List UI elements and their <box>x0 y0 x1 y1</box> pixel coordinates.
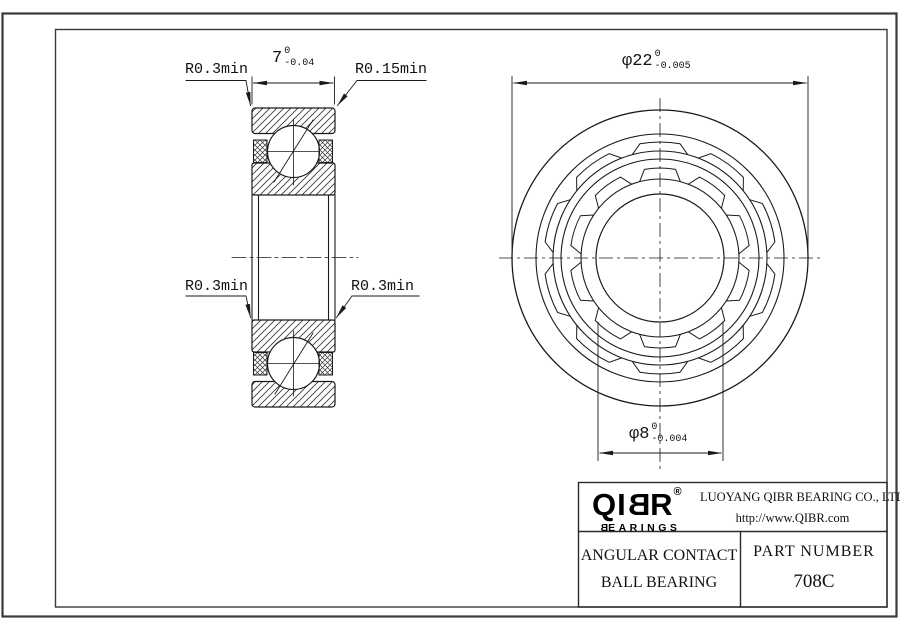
bore-tol-lower: -0.004 <box>651 434 687 446</box>
drawing-canvas <box>0 0 900 636</box>
radius-label-top-left: R0.3min <box>185 61 248 78</box>
sheet-borders <box>3 14 897 617</box>
product-name-line1: ANGULAR CONTACT <box>578 547 740 565</box>
company-website: http://www.QIBR.com <box>700 511 885 526</box>
company-name: LUOYANG QIBR BEARING CO., LTD <box>700 490 885 505</box>
product-name-line2: BALL BEARING <box>578 574 740 592</box>
bore-diameter-value: φ8 <box>629 425 649 444</box>
width-dimension-text: 70-0.04 <box>272 47 314 70</box>
logo-post: R <box>650 487 673 522</box>
width-tol-lower: -0.04 <box>284 58 314 70</box>
drawing-sheet: R0.3min R0.15min R0.3min R0.3min 70-0.04… <box>0 0 900 636</box>
radius-label-mid-left: R0.3min <box>185 278 248 295</box>
bore-tol-upper: 0 <box>651 422 687 434</box>
cage-section-bottom-left <box>254 353 268 376</box>
bearing-cross-section-view <box>186 77 426 407</box>
width-tol-upper: 0 <box>284 46 314 58</box>
logo-pre: QI <box>592 487 627 522</box>
width-value: 7 <box>272 49 282 68</box>
part-number-value: 708C <box>741 571 887 593</box>
radius-label-top-right: R0.15min <box>355 61 427 78</box>
registered-mark: ® <box>674 486 683 498</box>
cage-section-bottom-right <box>319 353 333 376</box>
cage-section-top-left <box>254 140 268 163</box>
logo-wordmark: QIBR® <box>592 489 683 520</box>
part-number-label: PART NUMBER <box>741 543 887 561</box>
radius-label-mid-right: R0.3min <box>351 278 414 295</box>
cage-section-top-right <box>319 140 333 163</box>
company-logo: QIBR® BEARINGS <box>592 489 683 534</box>
outer-diameter-value: φ22 <box>622 52 653 71</box>
logo-sub-rest: EARINGS <box>608 522 680 534</box>
logo-subtext: BEARINGS <box>597 522 683 534</box>
outer-tol-upper: 0 <box>655 49 691 61</box>
outer-tol-lower: -0.005 <box>655 61 691 73</box>
bearing-front-view <box>499 76 822 471</box>
bore-diameter-text: φ80-0.004 <box>629 423 687 446</box>
logo-b: B <box>627 489 650 520</box>
width-dimension <box>252 77 335 104</box>
logo-sub-first: B <box>597 522 608 534</box>
outer-diameter-text: φ220-0.005 <box>622 50 691 73</box>
